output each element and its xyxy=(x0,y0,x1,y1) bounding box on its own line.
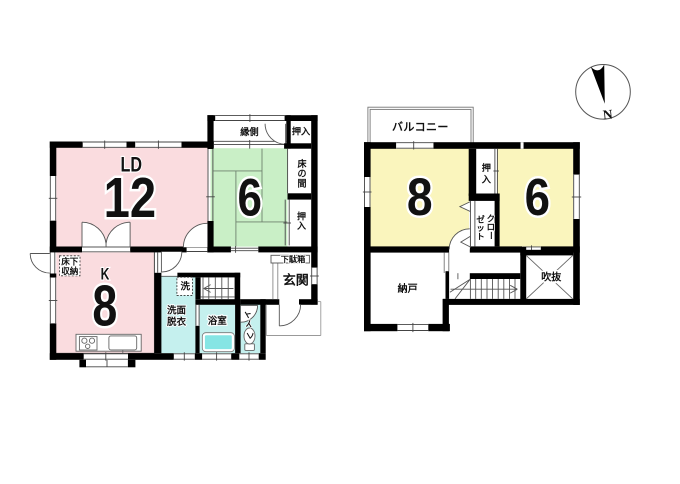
svg-text:間: 間 xyxy=(297,178,306,188)
svg-text:床下: 床下 xyxy=(61,256,79,267)
svg-text:洗面: 洗面 xyxy=(167,304,187,316)
svg-text:6: 6 xyxy=(237,169,261,227)
svg-text:浴室: 浴室 xyxy=(208,315,228,327)
svg-text:8: 8 xyxy=(92,273,117,338)
svg-text:洗: 洗 xyxy=(180,281,190,293)
svg-text:脱衣: 脱衣 xyxy=(167,316,187,328)
svg-text:N: N xyxy=(602,107,614,123)
svg-text:縁側: 縁側 xyxy=(240,126,258,137)
svg-text:床: 床 xyxy=(297,158,307,169)
svg-text:入: 入 xyxy=(296,221,306,231)
svg-text:押: 押 xyxy=(482,162,491,173)
svg-text:吹抜: 吹抜 xyxy=(541,271,562,284)
svg-text:バルコニー: バルコニー xyxy=(392,120,449,133)
svg-text:入: 入 xyxy=(482,175,492,185)
svg-text:ト: ト xyxy=(476,232,484,242)
svg-text:納戸: 納戸 xyxy=(398,282,418,295)
svg-text:の: の xyxy=(297,169,306,179)
svg-text:玄関: 玄関 xyxy=(283,273,309,288)
svg-text:12: 12 xyxy=(104,167,156,230)
svg-text:8: 8 xyxy=(407,168,433,226)
svg-text:下駄箱: 下駄箱 xyxy=(281,254,306,264)
svg-text:押入: 押入 xyxy=(292,126,311,137)
svg-text:ー: ー xyxy=(486,231,496,239)
svg-text:6: 6 xyxy=(525,169,550,226)
svg-text:収納: 収納 xyxy=(61,265,79,276)
